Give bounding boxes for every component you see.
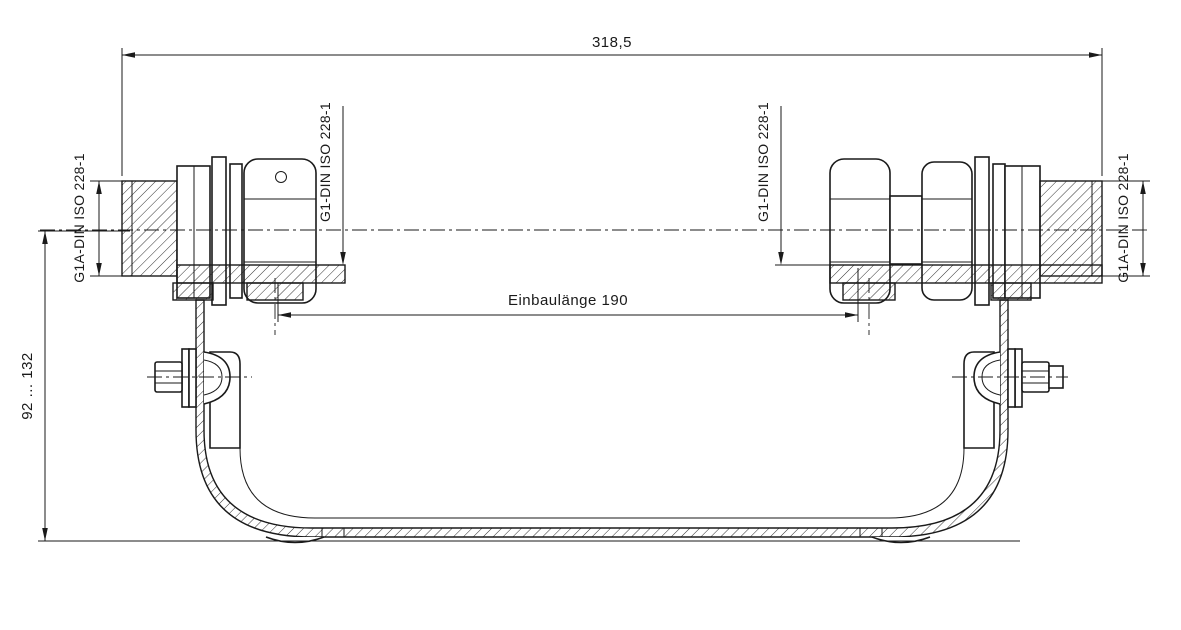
dimension-thread-right-outer: G1A-DIN ISO 228-1 — [1102, 153, 1150, 283]
overall-width-value: 318,5 — [592, 34, 632, 51]
installation-length-value: Einbaulänge 190 — [508, 292, 628, 309]
height-range-value: 92 ... 132 — [19, 352, 36, 420]
bracket-left-foot — [266, 537, 324, 543]
right-male-thread — [1040, 181, 1102, 276]
technical-drawing-page: 318,5 Einbaulänge 190 92 ... 132 G1A-DIN… — [0, 0, 1181, 630]
technical-drawing: 318,5 Einbaulänge 190 92 ... 132 G1A-DIN… — [0, 0, 1181, 630]
thread-right-outer-label: G1A-DIN ISO 228-1 — [1115, 153, 1131, 283]
left-flange-collar — [177, 265, 345, 283]
right-tailpiece-2 — [991, 283, 1031, 300]
label-thread-right-inner: G1-DIN ISO 228-1 — [755, 102, 784, 265]
thread-left-inner-label: G1-DIN ISO 228-1 — [317, 102, 333, 222]
left-male-thread — [122, 181, 177, 276]
left-bolt-washer2 — [189, 349, 196, 407]
left-fitting — [122, 157, 345, 335]
thread-left-outer-label: G1A-DIN ISO 228-1 — [71, 153, 87, 283]
right-bolt-washer — [1015, 349, 1022, 407]
dimension-installation-length: Einbaulänge 190 — [278, 268, 858, 322]
dimension-thread-left-outer: G1A-DIN ISO 228-1 — [71, 153, 122, 283]
label-thread-left-inner: G1-DIN ISO 228-1 — [317, 102, 346, 265]
left-bolt-washer — [182, 349, 189, 407]
right-flange-collar — [830, 265, 1102, 283]
dimension-overall-width: 318,5 — [122, 34, 1102, 176]
bracket-right-foot — [872, 537, 930, 543]
right-bolt-washer2 — [1008, 349, 1015, 407]
bracket-inner-edge — [240, 448, 964, 518]
bracket-bent-sheet — [196, 300, 1008, 537]
right-fitting — [775, 157, 1102, 335]
thread-right-inner-label: G1-DIN ISO 228-1 — [755, 102, 771, 222]
mounting-bracket — [196, 300, 1008, 543]
left-tailpiece-2 — [173, 283, 213, 300]
